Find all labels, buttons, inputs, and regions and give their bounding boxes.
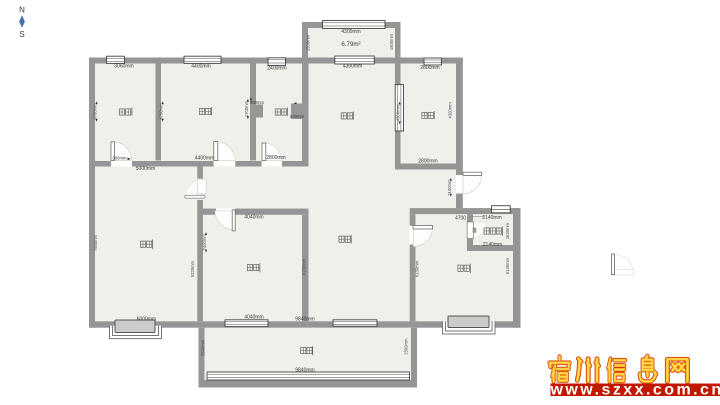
svg-text:2400mm: 2400mm	[267, 65, 286, 71]
svg-text:6.79m²: 6.79m²	[341, 41, 360, 48]
svg-text:640mm: 640mm	[290, 114, 304, 119]
svg-text:N: N	[19, 6, 25, 15]
svg-text:7460mm: 7460mm	[93, 234, 98, 251]
svg-text:2500mm: 2500mm	[404, 338, 409, 355]
svg-text:4040mm: 4040mm	[244, 215, 263, 221]
svg-text:2100mm: 2100mm	[447, 179, 452, 196]
svg-text:1500mm: 1500mm	[389, 33, 394, 50]
svg-text:1500mm: 1500mm	[306, 34, 311, 51]
svg-text:4700: 4700	[455, 215, 466, 221]
svg-text:4400mm: 4400mm	[191, 64, 210, 70]
svg-text:5000mm: 5000mm	[136, 166, 155, 172]
svg-text:4400mm: 4400mm	[195, 155, 214, 161]
svg-text:4700mm: 4700mm	[159, 103, 164, 120]
svg-text:6000mm: 6000mm	[137, 317, 156, 323]
svg-text:9840mm: 9840mm	[295, 368, 314, 374]
svg-text:3060mm: 3060mm	[114, 63, 133, 69]
svg-text:1830mm: 1830mm	[505, 222, 510, 239]
svg-text:2800mm: 2800mm	[420, 65, 439, 71]
svg-text:4700mm: 4700mm	[93, 103, 98, 120]
svg-text:600mm: 600mm	[250, 100, 264, 105]
svg-text:9840mm: 9840mm	[295, 317, 314, 323]
svg-text:4300mm: 4300mm	[396, 104, 401, 121]
svg-text:4040mm: 4040mm	[244, 315, 263, 321]
svg-text:S: S	[19, 30, 24, 39]
svg-text:6130mm: 6130mm	[302, 258, 307, 275]
svg-text:7400mm: 7400mm	[202, 234, 207, 251]
svg-text:2800mm: 2800mm	[418, 159, 437, 165]
svg-text:5220mm: 5220mm	[190, 260, 195, 277]
svg-text:2140mm: 2140mm	[483, 242, 502, 248]
svg-text:4300mm: 4300mm	[341, 29, 360, 35]
svg-text:2500mm: 2500mm	[201, 339, 206, 356]
svg-text:2140mm: 2140mm	[482, 215, 501, 221]
svg-text:4700mm: 4700mm	[244, 100, 249, 117]
svg-text:4300mm: 4300mm	[343, 63, 362, 69]
svg-text:2800mm: 2800mm	[266, 155, 285, 161]
svg-text:www.szxx.com.cn: www.szxx.com.cn	[550, 382, 720, 399]
svg-text:6130mm: 6130mm	[505, 257, 510, 274]
svg-text:6130mm: 6130mm	[415, 260, 420, 277]
svg-text:900mm: 900mm	[113, 156, 127, 161]
svg-text:4300mm: 4300mm	[448, 102, 453, 119]
